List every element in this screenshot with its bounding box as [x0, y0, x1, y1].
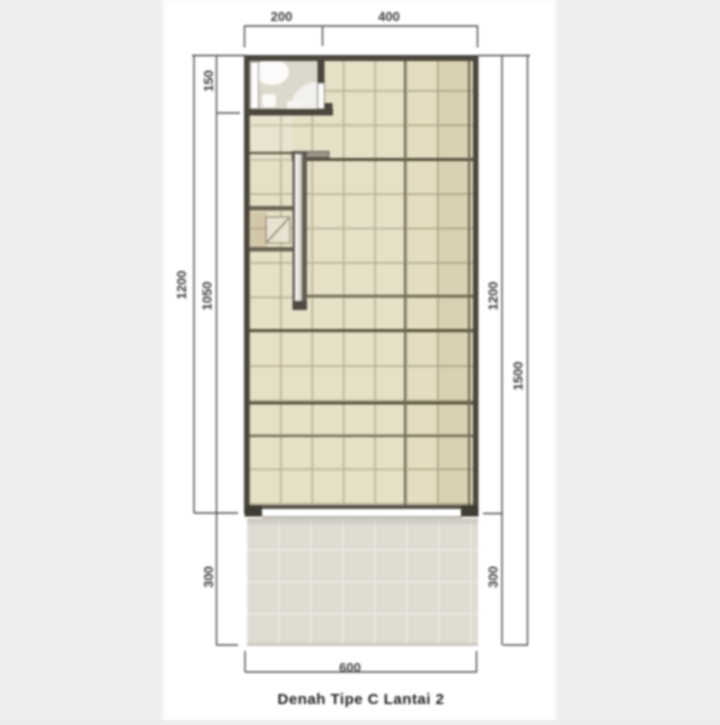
svg-text:300: 300: [201, 566, 216, 588]
svg-text:1050: 1050: [200, 282, 215, 311]
svg-text:1200: 1200: [174, 271, 189, 300]
svg-text:Denah Tipe C Lantai 2: Denah Tipe C Lantai 2: [278, 691, 445, 708]
svg-text:600: 600: [339, 660, 361, 675]
svg-text:1500: 1500: [511, 362, 526, 391]
svg-text:400: 400: [378, 9, 400, 24]
svg-text:200: 200: [271, 9, 293, 24]
svg-text:300: 300: [486, 566, 501, 588]
svg-text:1200: 1200: [486, 282, 501, 311]
svg-text:150: 150: [201, 70, 216, 92]
